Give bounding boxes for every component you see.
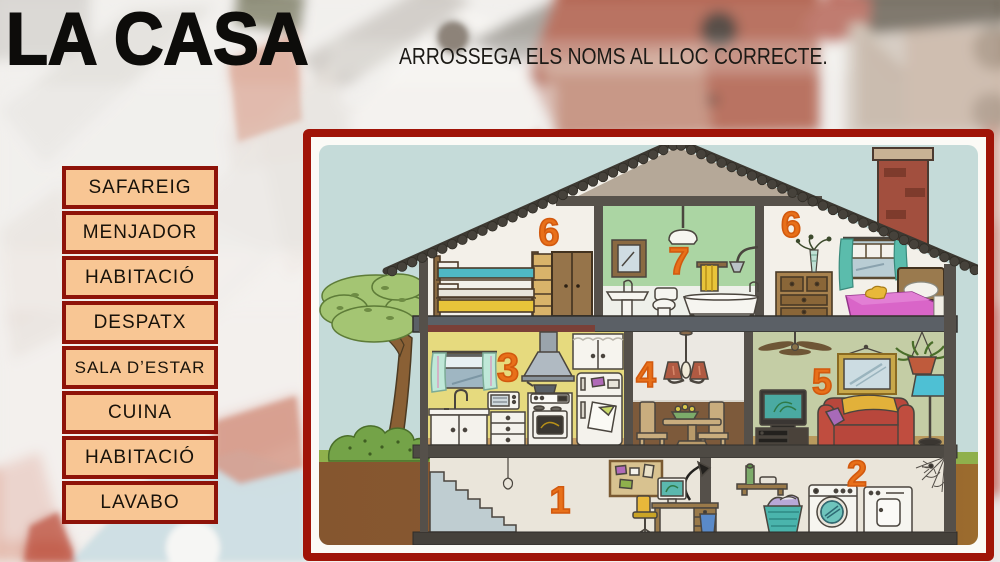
svg-text:2: 2: [847, 453, 867, 494]
svg-text:6: 6: [538, 212, 559, 254]
svg-text:4: 4: [636, 354, 656, 395]
svg-text:1: 1: [549, 480, 570, 522]
svg-text:6: 6: [781, 204, 801, 245]
svg-text:3: 3: [497, 346, 519, 390]
svg-text:7: 7: [668, 241, 689, 283]
svg-text:5: 5: [812, 361, 832, 402]
